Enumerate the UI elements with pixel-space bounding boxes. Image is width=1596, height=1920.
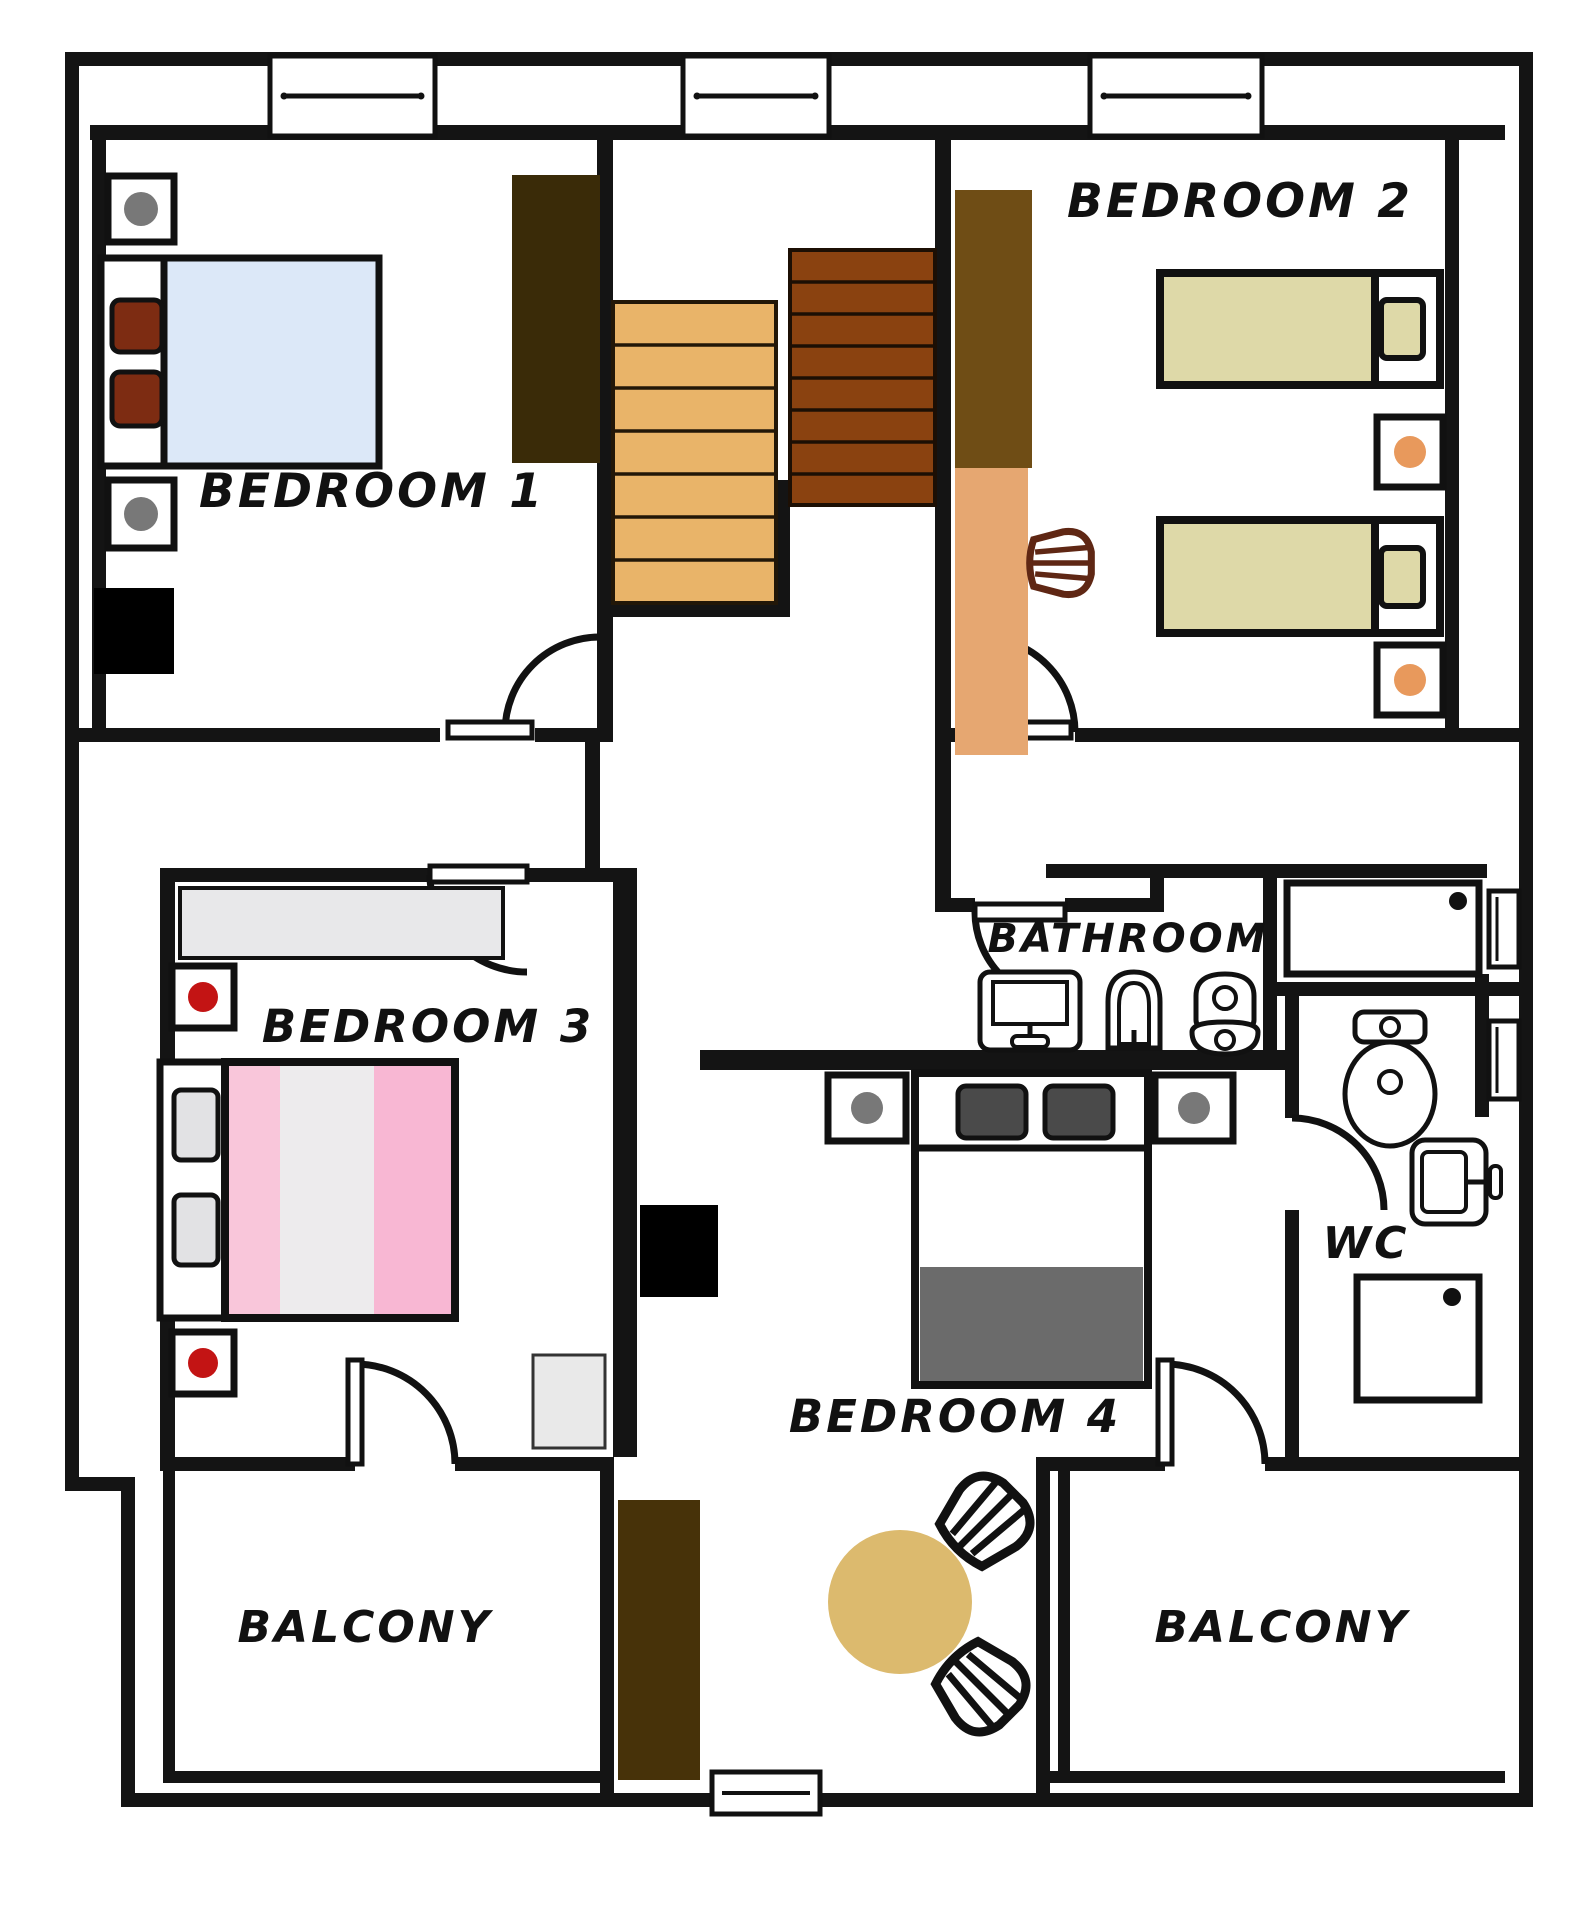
bedroom3-rug (533, 1355, 605, 1448)
wall-bedroom1-bottom-b (535, 728, 613, 742)
bedroom1-pillow-2 (112, 372, 162, 426)
bedroom4-round-table (828, 1530, 972, 1674)
door-arc-balcony-left (355, 1364, 455, 1464)
floor-plan: BEDROOM 1 BEDROOM 2 (0, 0, 1596, 1920)
bedroom2-lamp-1 (1394, 436, 1426, 468)
wall-wc-left-b (1285, 1210, 1299, 1457)
window-bottom (712, 1772, 820, 1814)
bedroom1-headboard (101, 258, 164, 466)
bedroom1-wardrobe (512, 175, 600, 463)
bedroom1-label: BEDROOM 1 (199, 464, 545, 519)
window-top-1 (270, 56, 435, 136)
wall-stairwell-right (935, 125, 951, 912)
bedroom4-label: BEDROOM 4 (789, 1390, 1121, 1443)
wall-bedroom4-bottom-b (1265, 1457, 1519, 1471)
bathroom-toilet-icon (1192, 974, 1258, 1054)
bedroom2-bed-top-mattress (1160, 273, 1375, 385)
bedroom1-mattress (164, 258, 379, 466)
wall-bathroom-right (1263, 864, 1277, 1060)
floor-plan-canvas: BEDROOM 1 BEDROOM 2 (0, 0, 1596, 1920)
door-leaf-bedroom3 (430, 866, 527, 882)
bedroom2-lamp-2 (1394, 664, 1426, 696)
bedroom3-wardrobe (180, 888, 503, 958)
wall-wc-left-a (1285, 982, 1299, 1118)
door-leaf-balcony-right (1158, 1360, 1172, 1464)
stairs-flight-dark (790, 250, 935, 505)
wall-stair-mid (776, 480, 790, 617)
bedroom3-lamp-top (188, 982, 218, 1012)
bedroom-4: BEDROOM 4 (618, 1073, 1233, 1780)
bedroom4-lamp-right (1178, 1092, 1210, 1124)
bathroom-bidet-icon (1108, 972, 1160, 1048)
bedroom4-rug-dark (618, 1500, 700, 1780)
door-arc-balcony-right (1165, 1364, 1265, 1464)
bedroom2-desk (955, 468, 1028, 755)
bedroom3-stripe-2 (280, 1062, 374, 1318)
bedroom2-label: BEDROOM 2 (1067, 174, 1413, 229)
wc-toilet-icon (1345, 1012, 1435, 1146)
bedroom2-wardrobe (955, 190, 1032, 468)
wall-bedroom3-bottom-a (160, 1457, 355, 1471)
bedroom4-pillow-1 (958, 1086, 1026, 1138)
wall-extension-right (1036, 1457, 1050, 1793)
bedroom3-lamp-bottom (188, 1348, 218, 1378)
bedroom2-bed-top (1160, 273, 1440, 385)
window-top-3 (1090, 56, 1262, 136)
door-leaf-bedroom1 (448, 722, 532, 738)
wc-sink-icon (1412, 1140, 1501, 1224)
bedroom2-bed-bottom-mattress (1160, 520, 1375, 633)
bedroom3-pillow-2 (174, 1195, 218, 1265)
door-leaf-balcony-left (348, 1360, 362, 1464)
bathroom-sink-icon (980, 972, 1080, 1050)
window-top-2 (683, 56, 829, 136)
wall-outer-left (65, 52, 79, 1491)
bedroom1-black-unit (94, 588, 174, 674)
wall-bedroom2-bottom-b (1075, 728, 1533, 742)
bedroom-2: BEDROOM 2 (955, 174, 1443, 755)
bedroom2-chair (1030, 531, 1092, 594)
door-arc-bedroom1 (505, 637, 600, 732)
balcony-left-label: BALCONY (237, 1602, 493, 1653)
bedroom4-pillow-2 (1045, 1086, 1113, 1138)
bedroom3-stripe-1 (225, 1062, 280, 1318)
bathroom-label: BATHROOM (988, 916, 1269, 962)
wall-bedroom1-bottom-a (79, 728, 440, 742)
bathroom-shower (1287, 883, 1479, 974)
rail-balcony-right-bottom (1050, 1771, 1505, 1783)
rail-balcony-left-bottom (174, 1771, 614, 1783)
wall-bedroom4-bottom-a (1050, 1457, 1165, 1471)
bedroom4-lamp-left (851, 1092, 883, 1124)
bedroom-1: BEDROOM 1 (94, 175, 600, 674)
wall-stair-bottom (597, 603, 790, 617)
rail-balcony-left-side (163, 1471, 175, 1783)
bedroom2-bed-bottom-pillow (1381, 548, 1423, 606)
wc: WC (1323, 1012, 1501, 1400)
wall-bedroom3-top-a (160, 868, 430, 882)
bedroom3-pillow-1 (174, 1090, 218, 1160)
wall-corridor-west (585, 742, 600, 872)
bedroom3-stripe-3 (374, 1062, 455, 1318)
wall-bedroom3-bedroom4 (613, 868, 637, 1457)
staircase (613, 250, 935, 603)
balcony-right-label: BALCONY (1154, 1602, 1410, 1653)
bedroom1-pillow-1 (112, 300, 162, 352)
bedroom1-bed (101, 258, 379, 466)
bedroom1-lamp-top (124, 192, 158, 226)
wc-shower (1357, 1277, 1479, 1400)
bedroom2-bed-top-pillow (1381, 300, 1423, 358)
wall-outer-left-lower (121, 1477, 135, 1807)
wall-bedroom2-right (1445, 125, 1459, 742)
bedroom3-bed (160, 1062, 455, 1318)
wall-wc-top (1277, 982, 1519, 996)
wc-label: WC (1323, 1218, 1410, 1269)
bedroom4-bed (915, 1073, 1148, 1385)
rail-balcony-right-side (1058, 1471, 1070, 1782)
wall-bedroom3-bottom-b (455, 1457, 614, 1471)
radiator-1 (1489, 891, 1519, 967)
bedroom-3: BEDROOM 3 (160, 888, 605, 1448)
radiator-2 (1489, 1021, 1519, 1099)
bedroom3-label: BEDROOM 3 (262, 1000, 594, 1053)
wall-bathroom-top-a (951, 898, 975, 912)
bedroom1-lamp-bottom (124, 497, 158, 531)
bedroom4-black-unit (640, 1205, 718, 1297)
wall-bathroom-top-b (1065, 898, 1150, 912)
wall-extension-left (600, 1457, 614, 1793)
bedroom4-blanket (920, 1267, 1143, 1381)
wall-outer-bottom (121, 1793, 1533, 1807)
stairs-flight-light (613, 302, 776, 603)
bedroom2-bed-bottom (1160, 520, 1440, 633)
